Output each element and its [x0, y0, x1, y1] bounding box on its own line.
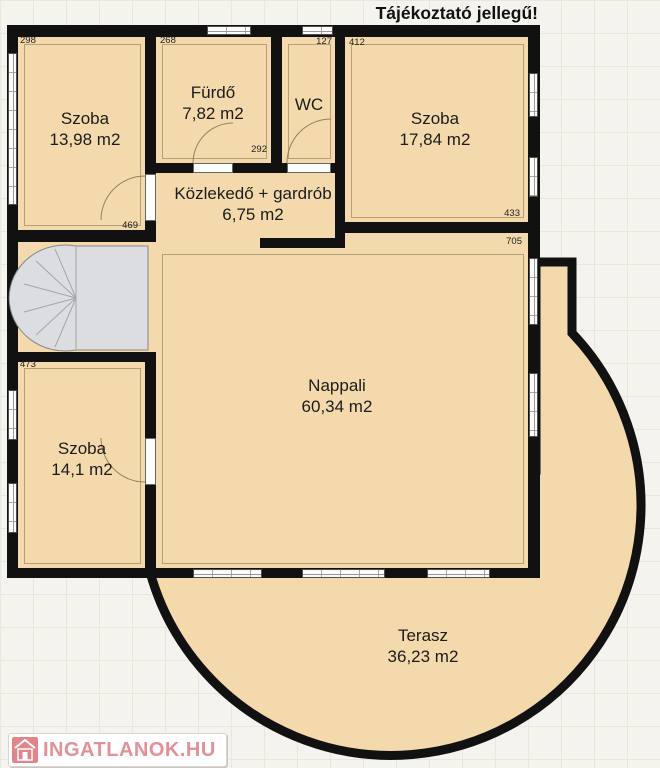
wall-segment — [7, 230, 156, 242]
room-name: Közlekedő + gardrób — [158, 183, 348, 204]
window — [302, 26, 333, 35]
dimension-label: 298 — [20, 36, 36, 46]
room-area: 14,1 m2 — [27, 459, 137, 480]
room-name: Nappali — [277, 375, 397, 396]
wall-segment — [145, 163, 193, 173]
window — [529, 373, 538, 437]
wall-segment — [145, 25, 156, 174]
terrace-door-window — [302, 569, 385, 578]
dimension-label: 412 — [349, 38, 365, 48]
room-name: Szoba — [30, 108, 140, 129]
room-area: 6,75 m2 — [158, 204, 348, 225]
notice-title: Tájékoztató jellegű! — [360, 3, 538, 24]
dimension-label: 127 — [310, 37, 332, 47]
room-label-terasz: Terasz 36,23 m2 — [363, 625, 483, 667]
window — [8, 483, 17, 533]
window — [193, 569, 262, 578]
window — [427, 569, 490, 578]
room-name: Szoba — [375, 108, 495, 129]
room-area: 13,98 m2 — [30, 129, 140, 150]
dimension-label: 268 — [160, 36, 176, 46]
window — [529, 258, 538, 325]
room-area: 60,34 m2 — [277, 396, 397, 417]
room-area: 7,82 m2 — [160, 103, 266, 124]
window — [529, 73, 538, 117]
door — [193, 163, 233, 173]
dimension-label: 292 — [245, 145, 267, 155]
dimension-label: 705 — [500, 237, 522, 247]
window — [207, 26, 251, 35]
wall-segment — [145, 485, 156, 568]
room-name: Terasz — [363, 625, 483, 646]
wall-segment — [233, 163, 287, 173]
dimension-label: 469 — [116, 221, 138, 231]
room-name: WC — [283, 94, 335, 115]
room-name: Fürdő — [160, 82, 266, 103]
window — [8, 53, 17, 205]
wall-segment — [260, 238, 345, 248]
room-label-szoba-ne: Szoba 17,84 m2 — [375, 108, 495, 150]
room-label-kozlekedo: Közlekedő + gardrób 6,75 m2 — [158, 183, 348, 225]
room-label-furdo: Fürdő 7,82 m2 — [160, 82, 266, 124]
room-label-szoba-sw: Szoba 14,1 m2 — [27, 438, 137, 480]
window — [529, 157, 538, 197]
room-area: 17,84 m2 — [375, 129, 495, 150]
room-label-szoba-nw: Szoba 13,98 m2 — [30, 108, 140, 150]
ingatlanok-watermark: INGATLANOK.HU — [8, 733, 227, 767]
room-area: 36,23 m2 — [363, 646, 483, 667]
wall-segment — [335, 222, 540, 233]
floor-plan: Tájékoztató jellegű! Szoba 13,98 m2 Fürd… — [0, 0, 660, 768]
door — [287, 163, 331, 173]
wall-segment — [331, 163, 345, 173]
house-icon — [12, 737, 38, 763]
dimension-label: 473 — [20, 360, 36, 370]
wall-segment — [271, 25, 282, 173]
door — [145, 438, 156, 485]
dimension-label: 433 — [498, 209, 520, 219]
window — [8, 390, 17, 440]
room-label-nappali: Nappali 60,34 m2 — [277, 375, 397, 417]
wall-segment — [145, 352, 156, 438]
watermark-text: INGATLANOK.HU — [43, 739, 216, 762]
room-label-wc: WC — [283, 94, 335, 115]
door — [145, 174, 156, 221]
room-name: Szoba — [27, 438, 137, 459]
